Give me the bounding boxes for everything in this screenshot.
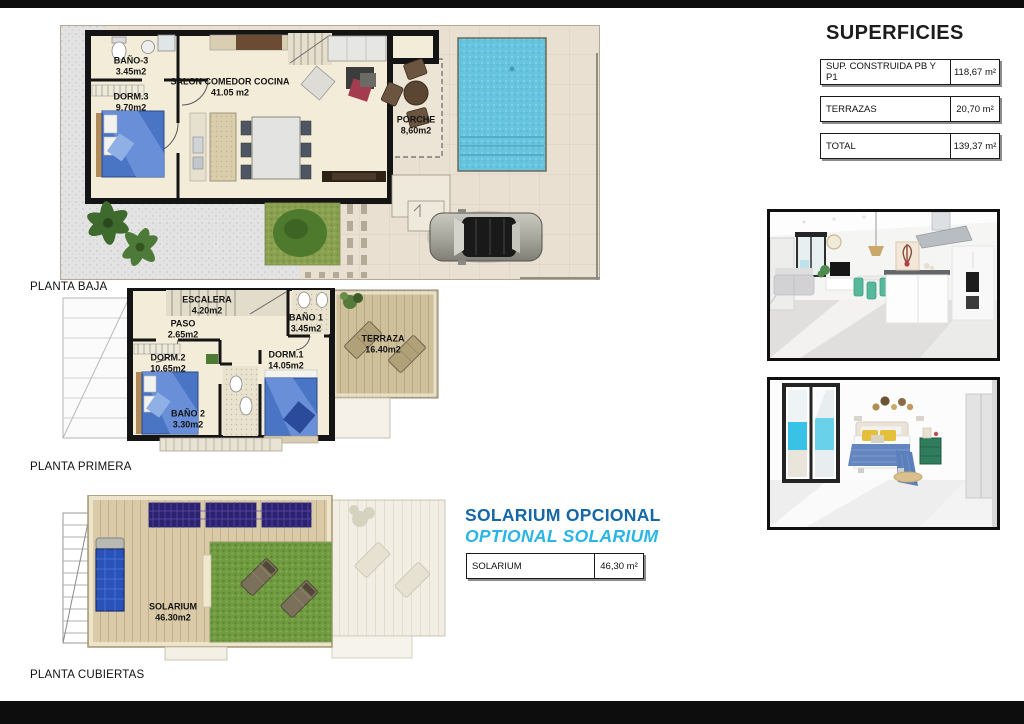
room-label-dorm2: DORM.2 10.65m2 (150, 352, 186, 373)
room-label-escalera: ESCALERA 4.20m2 (182, 294, 232, 315)
solarium-table: SOLARIUM 46,30 m² (466, 553, 644, 579)
solarium-title-en: OPTIONAL SOLARIUM (465, 526, 658, 547)
solarium-row-label: SOLARIUM (467, 554, 594, 578)
top-border-bar (0, 0, 1024, 8)
bedroom-photo-drawing (770, 380, 997, 527)
superficies-row-value: 20,70 m² (950, 97, 999, 121)
floor-plan-planta-primera: ESCALERA 4.20m2 PASO 2.65m2 BAÑO 1 3.45m… (60, 288, 460, 458)
superficies-row-label: TOTAL (821, 134, 950, 158)
plan-caption-planta-cubiertas: PLANTA CUBIERTAS (30, 669, 144, 681)
superficies-row-label: TERRAZAS (821, 97, 950, 121)
room-label-paso: PASO 2.65m2 (168, 318, 199, 339)
room-label-dorm1: DORM.1 14.05m2 (268, 349, 304, 370)
solarium-row: SOLARIUM 46,30 m² (466, 553, 644, 579)
solarium-row-value: 46,30 m² (594, 554, 643, 578)
superficies-row-value: 118,67 m² (950, 60, 999, 84)
bottom-border-bar (0, 701, 1024, 724)
superficies-row-value: 139,37 m² (950, 134, 999, 158)
superficies-row-total: TOTAL 139,37 m² (820, 133, 1000, 159)
solarium-title-es: SOLARIUM OPCIONAL (465, 505, 661, 526)
photo-kitchen-living (767, 209, 1000, 361)
room-label-solarium: SOLARIUM 46.30m2 (149, 601, 197, 622)
planta-primera-drawing (60, 288, 460, 458)
plan-caption-planta-primera: PLANTA PRIMERA (30, 461, 132, 473)
floor-plan-planta-baja: BAÑO-3 3.45m2 DORM.3 9.70m2 SALON COMEDO… (60, 25, 600, 280)
room-label-terraza: TERRAZA 16.40m2 (362, 333, 405, 354)
superficies-row-label: SUP. CONSTRUIDA PB Y P1 (821, 60, 950, 84)
floor-plan-planta-cubiertas: SOLARIUM 46.30m2 (60, 495, 450, 663)
brochure-page: BAÑO-3 3.45m2 DORM.3 9.70m2 SALON COMEDO… (0, 0, 1024, 724)
room-label-porche: PORCHE 8,60m2 (397, 114, 436, 135)
room-label-bano2: BAÑO 2 3.30m2 (171, 408, 205, 429)
room-label-bano3: BAÑO-3 3.45m2 (114, 55, 149, 76)
room-label-salon: SALON COMEDOR COCINA 41.05 m2 (171, 76, 290, 97)
superficies-panel: SUPERFICIES SUP. CONSTRUIDA PB Y P1 118,… (820, 22, 1000, 170)
superficies-title: SUPERFICIES (826, 22, 1000, 45)
photo-bedroom (767, 377, 1000, 530)
kitchen-photo-drawing (770, 212, 997, 358)
superficies-row-construida: SUP. CONSTRUIDA PB Y P1 118,67 m² (820, 59, 1000, 85)
planta-cubiertas-drawing (60, 495, 450, 663)
room-label-bano1: BAÑO 1 3.45m2 (289, 312, 323, 333)
superficies-row-terrazas: TERRAZAS 20,70 m² (820, 96, 1000, 122)
room-label-dorm3: DORM.3 9.70m2 (113, 91, 148, 112)
